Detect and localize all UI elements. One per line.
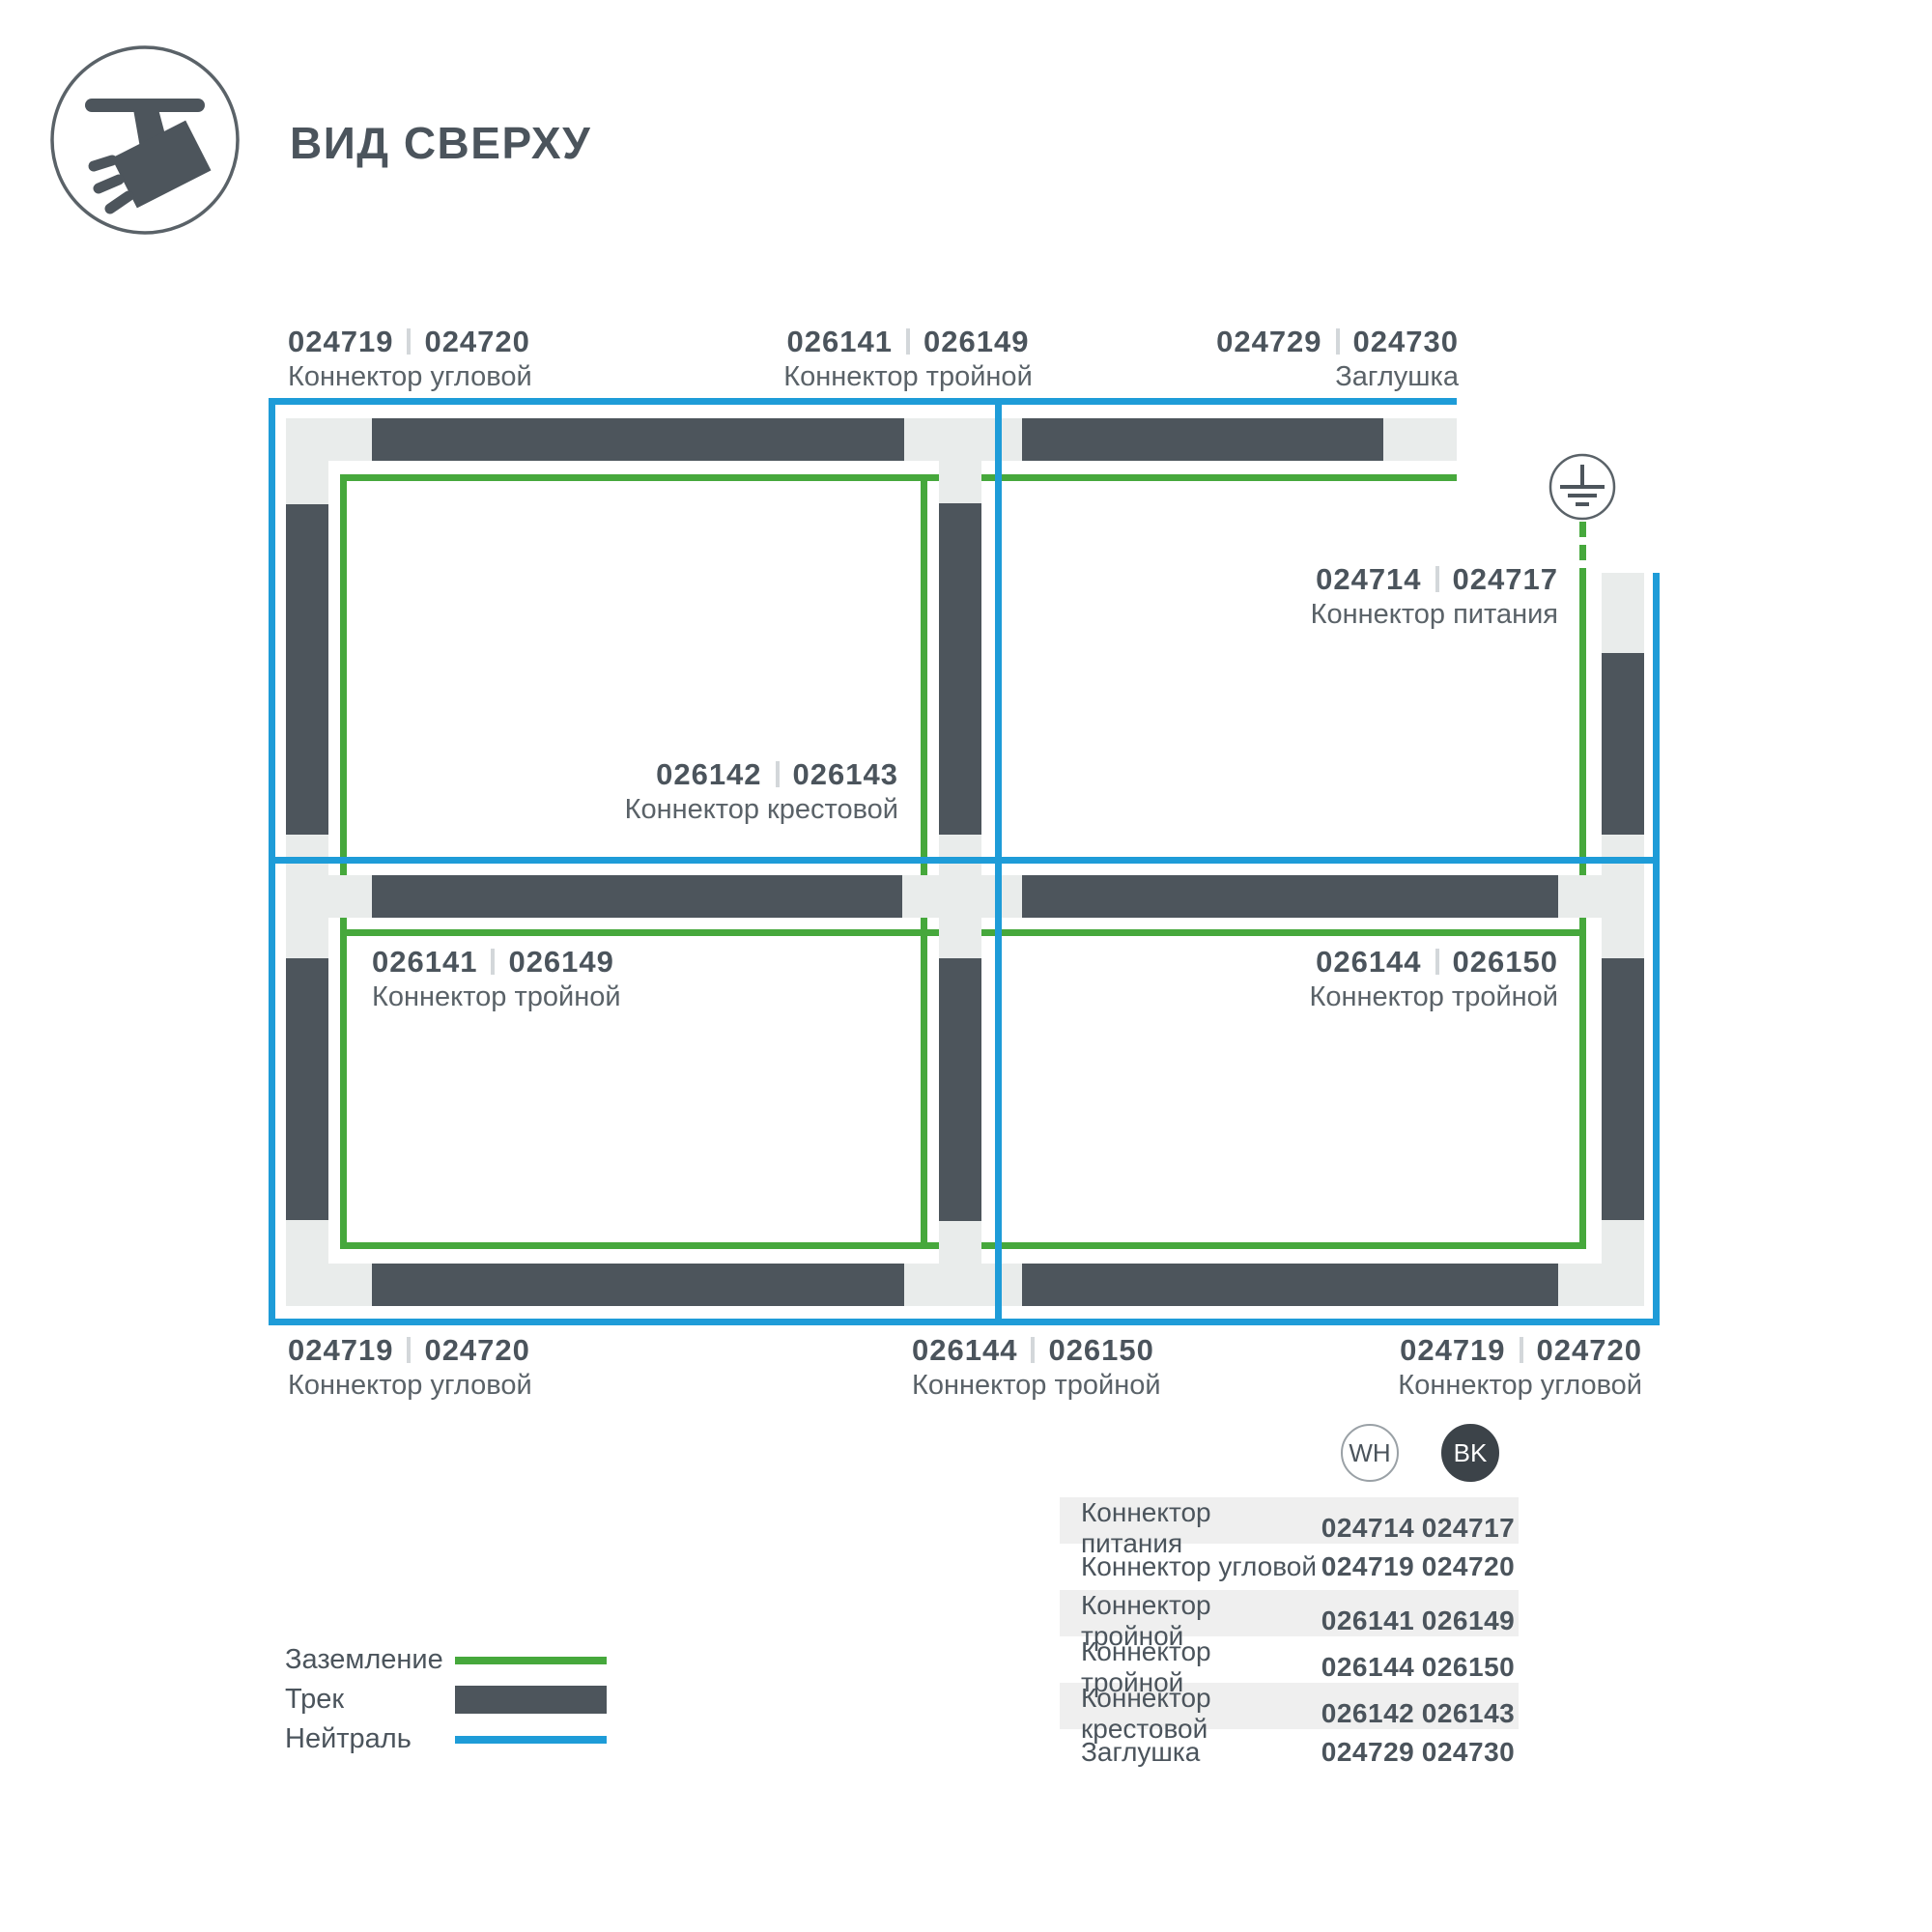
ground-line-swatch bbox=[455, 1657, 607, 1664]
code-separator bbox=[407, 1337, 411, 1363]
triple-connector-left bbox=[328, 875, 372, 918]
code-separator bbox=[1435, 949, 1439, 975]
parts-table-header: WH BK bbox=[1060, 1424, 1519, 1490]
table-row: Заглушка024729024730 bbox=[1060, 1729, 1519, 1776]
part-name: Коннектор угловой bbox=[288, 1370, 532, 1402]
part-name: Коннектор тройной bbox=[912, 1370, 1161, 1402]
code-separator bbox=[776, 761, 780, 787]
part-name: Коннектор угловой bbox=[288, 361, 532, 393]
legend-item-neutral: Нейтраль bbox=[285, 1719, 613, 1759]
neutral-line bbox=[1653, 573, 1660, 1325]
legend-label: Трек bbox=[285, 1684, 455, 1716]
neutral-line bbox=[269, 1319, 1660, 1325]
part-codes: 024719024720 bbox=[1398, 1333, 1642, 1367]
table-row: Коннектор тройной026144026150 bbox=[1060, 1636, 1519, 1683]
corner-connector-top-left bbox=[286, 418, 328, 504]
table-row: Коннектор тройной026141026149 bbox=[1060, 1590, 1519, 1636]
table-row: Коннектор питания024714024717 bbox=[1060, 1497, 1519, 1544]
page-title: ВИД СВЕРХУ bbox=[290, 118, 591, 168]
code-separator bbox=[407, 328, 411, 355]
legend: Заземление Трек Нейтраль bbox=[285, 1640, 613, 1759]
track-segment bbox=[939, 958, 981, 1221]
part-name: Заглушка bbox=[1216, 361, 1459, 393]
ground-line bbox=[340, 474, 1457, 481]
color-wh-badge: WH bbox=[1341, 1424, 1399, 1482]
code-separator bbox=[1520, 1337, 1523, 1363]
part-name: Коннектор тройной bbox=[1309, 981, 1558, 1013]
part-codes: 026142026143 bbox=[625, 757, 898, 791]
label-triple-connector-top: 026141026149 Коннектор тройной bbox=[715, 325, 1101, 393]
part-name: Коннектор тройной bbox=[372, 981, 621, 1013]
neutral-line bbox=[269, 398, 1457, 405]
track-spotlight-icon bbox=[48, 43, 241, 237]
part-codes: 026144026150 bbox=[1309, 945, 1558, 979]
triple-connector-right bbox=[1602, 835, 1644, 958]
neutral-line bbox=[995, 398, 1002, 1325]
track-segment bbox=[286, 958, 328, 1220]
track-swatch bbox=[455, 1686, 607, 1714]
part-codes: 026141026149 bbox=[372, 945, 621, 979]
label-triple-connector-bottom: 026144026150 Коннектор тройной bbox=[912, 1333, 1161, 1402]
ground-line-dash bbox=[1579, 545, 1586, 560]
legend-label: Заземление bbox=[285, 1644, 455, 1676]
label-corner-connector-bottom-right: 024719024720 Коннектор угловой bbox=[1398, 1333, 1642, 1402]
part-name: Коннектор угловой bbox=[1398, 1370, 1642, 1402]
part-codes: 026141026149 bbox=[715, 325, 1101, 358]
track-segment bbox=[1022, 875, 1558, 918]
label-cross-connector: 026142026143 Коннектор крестовой bbox=[625, 757, 898, 826]
triple-connector-left bbox=[286, 835, 328, 958]
color-bk-badge: BK bbox=[1441, 1424, 1499, 1482]
power-connector bbox=[1602, 573, 1644, 653]
part-name: Коннектор питания bbox=[1311, 599, 1558, 631]
track-segment bbox=[372, 418, 904, 461]
track-segment bbox=[1022, 418, 1383, 461]
track-segment bbox=[1602, 958, 1644, 1220]
part-name: Коннектор крестовой bbox=[625, 794, 898, 826]
triple-connector-top bbox=[904, 418, 1022, 461]
part-codes: 024719024720 bbox=[288, 325, 532, 358]
label-corner-connector-top-left: 024719024720 Коннектор угловой bbox=[288, 325, 532, 393]
track-segment bbox=[286, 503, 328, 835]
label-triple-connector-right: 026144026150 Коннектор тройной bbox=[1309, 945, 1558, 1013]
part-codes: 026144026150 bbox=[912, 1333, 1161, 1367]
code-separator bbox=[491, 949, 495, 975]
label-corner-connector-bottom-left: 024719024720 Коннектор угловой bbox=[288, 1333, 532, 1402]
legend-item-ground: Заземление bbox=[285, 1640, 613, 1680]
legend-item-track: Трек bbox=[285, 1680, 613, 1719]
neutral-line-swatch bbox=[455, 1736, 607, 1744]
part-codes: 024729024730 bbox=[1216, 325, 1459, 358]
cross-connector bbox=[939, 835, 981, 958]
corner-connector-bottom-left bbox=[286, 1264, 372, 1306]
corner-connector-bottom-right bbox=[1558, 1264, 1644, 1306]
track-segment bbox=[939, 503, 981, 835]
track-segment bbox=[1022, 1264, 1558, 1306]
part-codes: 024714024717 bbox=[1311, 562, 1558, 596]
code-separator bbox=[1031, 1337, 1035, 1363]
code-separator bbox=[906, 328, 910, 355]
ground-symbol-icon bbox=[1548, 452, 1617, 522]
page: ВИД СВЕРХУ bbox=[0, 0, 1932, 1932]
triple-connector-right bbox=[1558, 875, 1602, 918]
code-separator bbox=[1336, 328, 1340, 355]
triple-connector-top bbox=[939, 461, 981, 503]
part-codes: 024719024720 bbox=[288, 1333, 532, 1367]
triple-connector-bottom bbox=[904, 1264, 1022, 1306]
table-row: Коннектор угловой024719024720 bbox=[1060, 1544, 1519, 1590]
label-power-connector: 024714024717 Коннектор питания bbox=[1311, 562, 1558, 631]
label-triple-connector-left: 026141026149 Коннектор тройной bbox=[372, 945, 621, 1013]
table-row: Коннектор крестовой026142026143 bbox=[1060, 1683, 1519, 1729]
code-separator bbox=[1435, 566, 1439, 592]
ground-line-dash bbox=[1579, 522, 1586, 537]
legend-label: Нейтраль bbox=[285, 1723, 455, 1755]
track-spotlight-icon-svg bbox=[48, 43, 241, 237]
triple-connector-bottom bbox=[939, 1221, 981, 1264]
track-segment bbox=[372, 1264, 904, 1306]
track-segment bbox=[1602, 653, 1644, 835]
label-end-cap-top: 024729024730 Заглушка bbox=[1216, 325, 1459, 393]
parts-table: WH BK Коннектор питания024714024717 Конн… bbox=[1060, 1424, 1519, 1776]
part-name: Коннектор тройной bbox=[715, 361, 1101, 393]
end-cap bbox=[1383, 418, 1457, 461]
track-segment bbox=[372, 875, 902, 918]
neutral-line bbox=[269, 857, 1660, 864]
